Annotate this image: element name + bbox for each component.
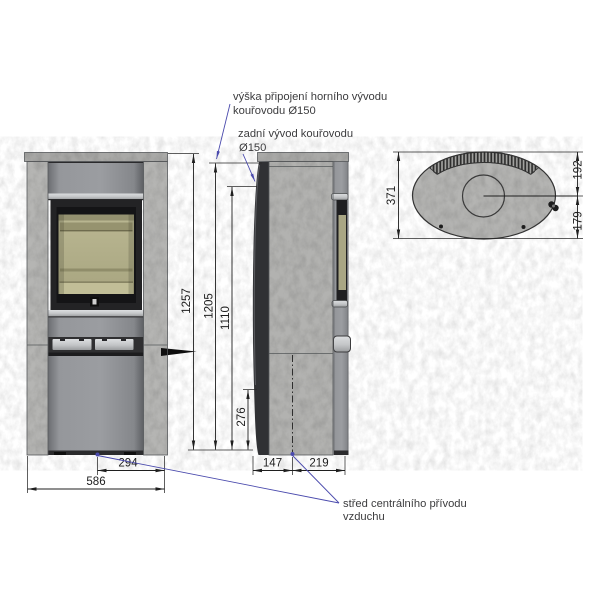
ash-drawer-handle-right [95, 339, 134, 350]
front-view [48, 162, 197, 456]
side-back-panel [253, 162, 269, 456]
dim-height-top-outlet: 1205 [204, 293, 216, 319]
glass-left-shade [59, 215, 65, 295]
glass-top-shade [59, 215, 135, 221]
front-upper-strip [48, 194, 144, 200]
callout-rear-outlet-line1: zadní vývod kouřovodu [238, 128, 353, 140]
dim-back-to-air: 147 [263, 458, 282, 470]
air-supply-point-front [96, 453, 100, 457]
knob-highlight [552, 205, 555, 208]
side-plinth [334, 451, 349, 456]
callout-top-outlet-line1: výška připojení horního vývodu [233, 91, 387, 103]
handle-notch [102, 339, 107, 341]
dim-air-to-front: 219 [309, 458, 328, 470]
glass-right-shade [129, 215, 135, 295]
stove-technical-drawing: 1257 1205 1110 276 294 586 147 219 371 1… [0, 0, 600, 600]
firebox-baffle [60, 223, 133, 231]
leader-rear-outlet [243, 154, 255, 182]
front-dark-band [48, 353, 144, 357]
side-stone-column [269, 162, 333, 456]
dim-width-total: 586 [86, 476, 105, 488]
callout-top-outlet-line2: kouřovodu Ø150 [233, 105, 316, 117]
side-top-slab [258, 153, 349, 162]
top-screw [439, 225, 443, 229]
dim-air-center-to-edge: 294 [118, 458, 138, 470]
foot [124, 452, 136, 455]
dim-height-rear-outlet: 1110 [220, 306, 232, 330]
air-supply-point-side [291, 452, 295, 456]
door-handle-side [334, 336, 351, 352]
floor-edge [60, 282, 134, 283]
dim-height-rear-air: 276 [236, 407, 248, 426]
handle-notch [60, 339, 65, 341]
front-top-slab [25, 153, 168, 162]
dim-front-to-flue: 192 [573, 160, 585, 179]
front-top-panel [48, 163, 144, 194]
dim-depth-total: 371 [386, 186, 398, 205]
mid-strip-shadow [48, 316, 144, 317]
dim-flue-to-back: 179 [573, 211, 585, 230]
leader-top-outlet [217, 104, 231, 159]
dim-height-total: 1257 [181, 288, 193, 314]
baffle-edge [60, 230, 133, 231]
callout-air-supply-line1: střed centrálního přívodu [343, 498, 467, 510]
firebox-floor [60, 282, 134, 295]
front-left-pillar [27, 162, 48, 456]
door-handle-front [161, 348, 197, 356]
side-glass-edge [339, 215, 347, 290]
ash-drawer-handle-left [53, 339, 92, 350]
front-mid-panel [48, 318, 144, 338]
foot [54, 452, 66, 455]
drawing-canvas: 1257 1205 1110 276 294 586 147 219 371 1… [0, 0, 600, 600]
side-upper-strip [332, 194, 349, 201]
callout-air-supply-line2: vzduchu [343, 511, 385, 523]
firebox-line [60, 269, 133, 272]
leader-air-front [98, 456, 340, 504]
top-screw [522, 225, 526, 229]
handle-notch [79, 339, 84, 341]
side-mid-strip [332, 301, 348, 308]
door-latch-plate [93, 299, 97, 305]
front-lower-panel [48, 356, 144, 451]
front-right-pillar [144, 162, 168, 456]
front-mid-strip [48, 310, 144, 317]
callout-rear-outlet-line2: Ø150 [239, 142, 266, 154]
handle-notch [121, 339, 126, 341]
